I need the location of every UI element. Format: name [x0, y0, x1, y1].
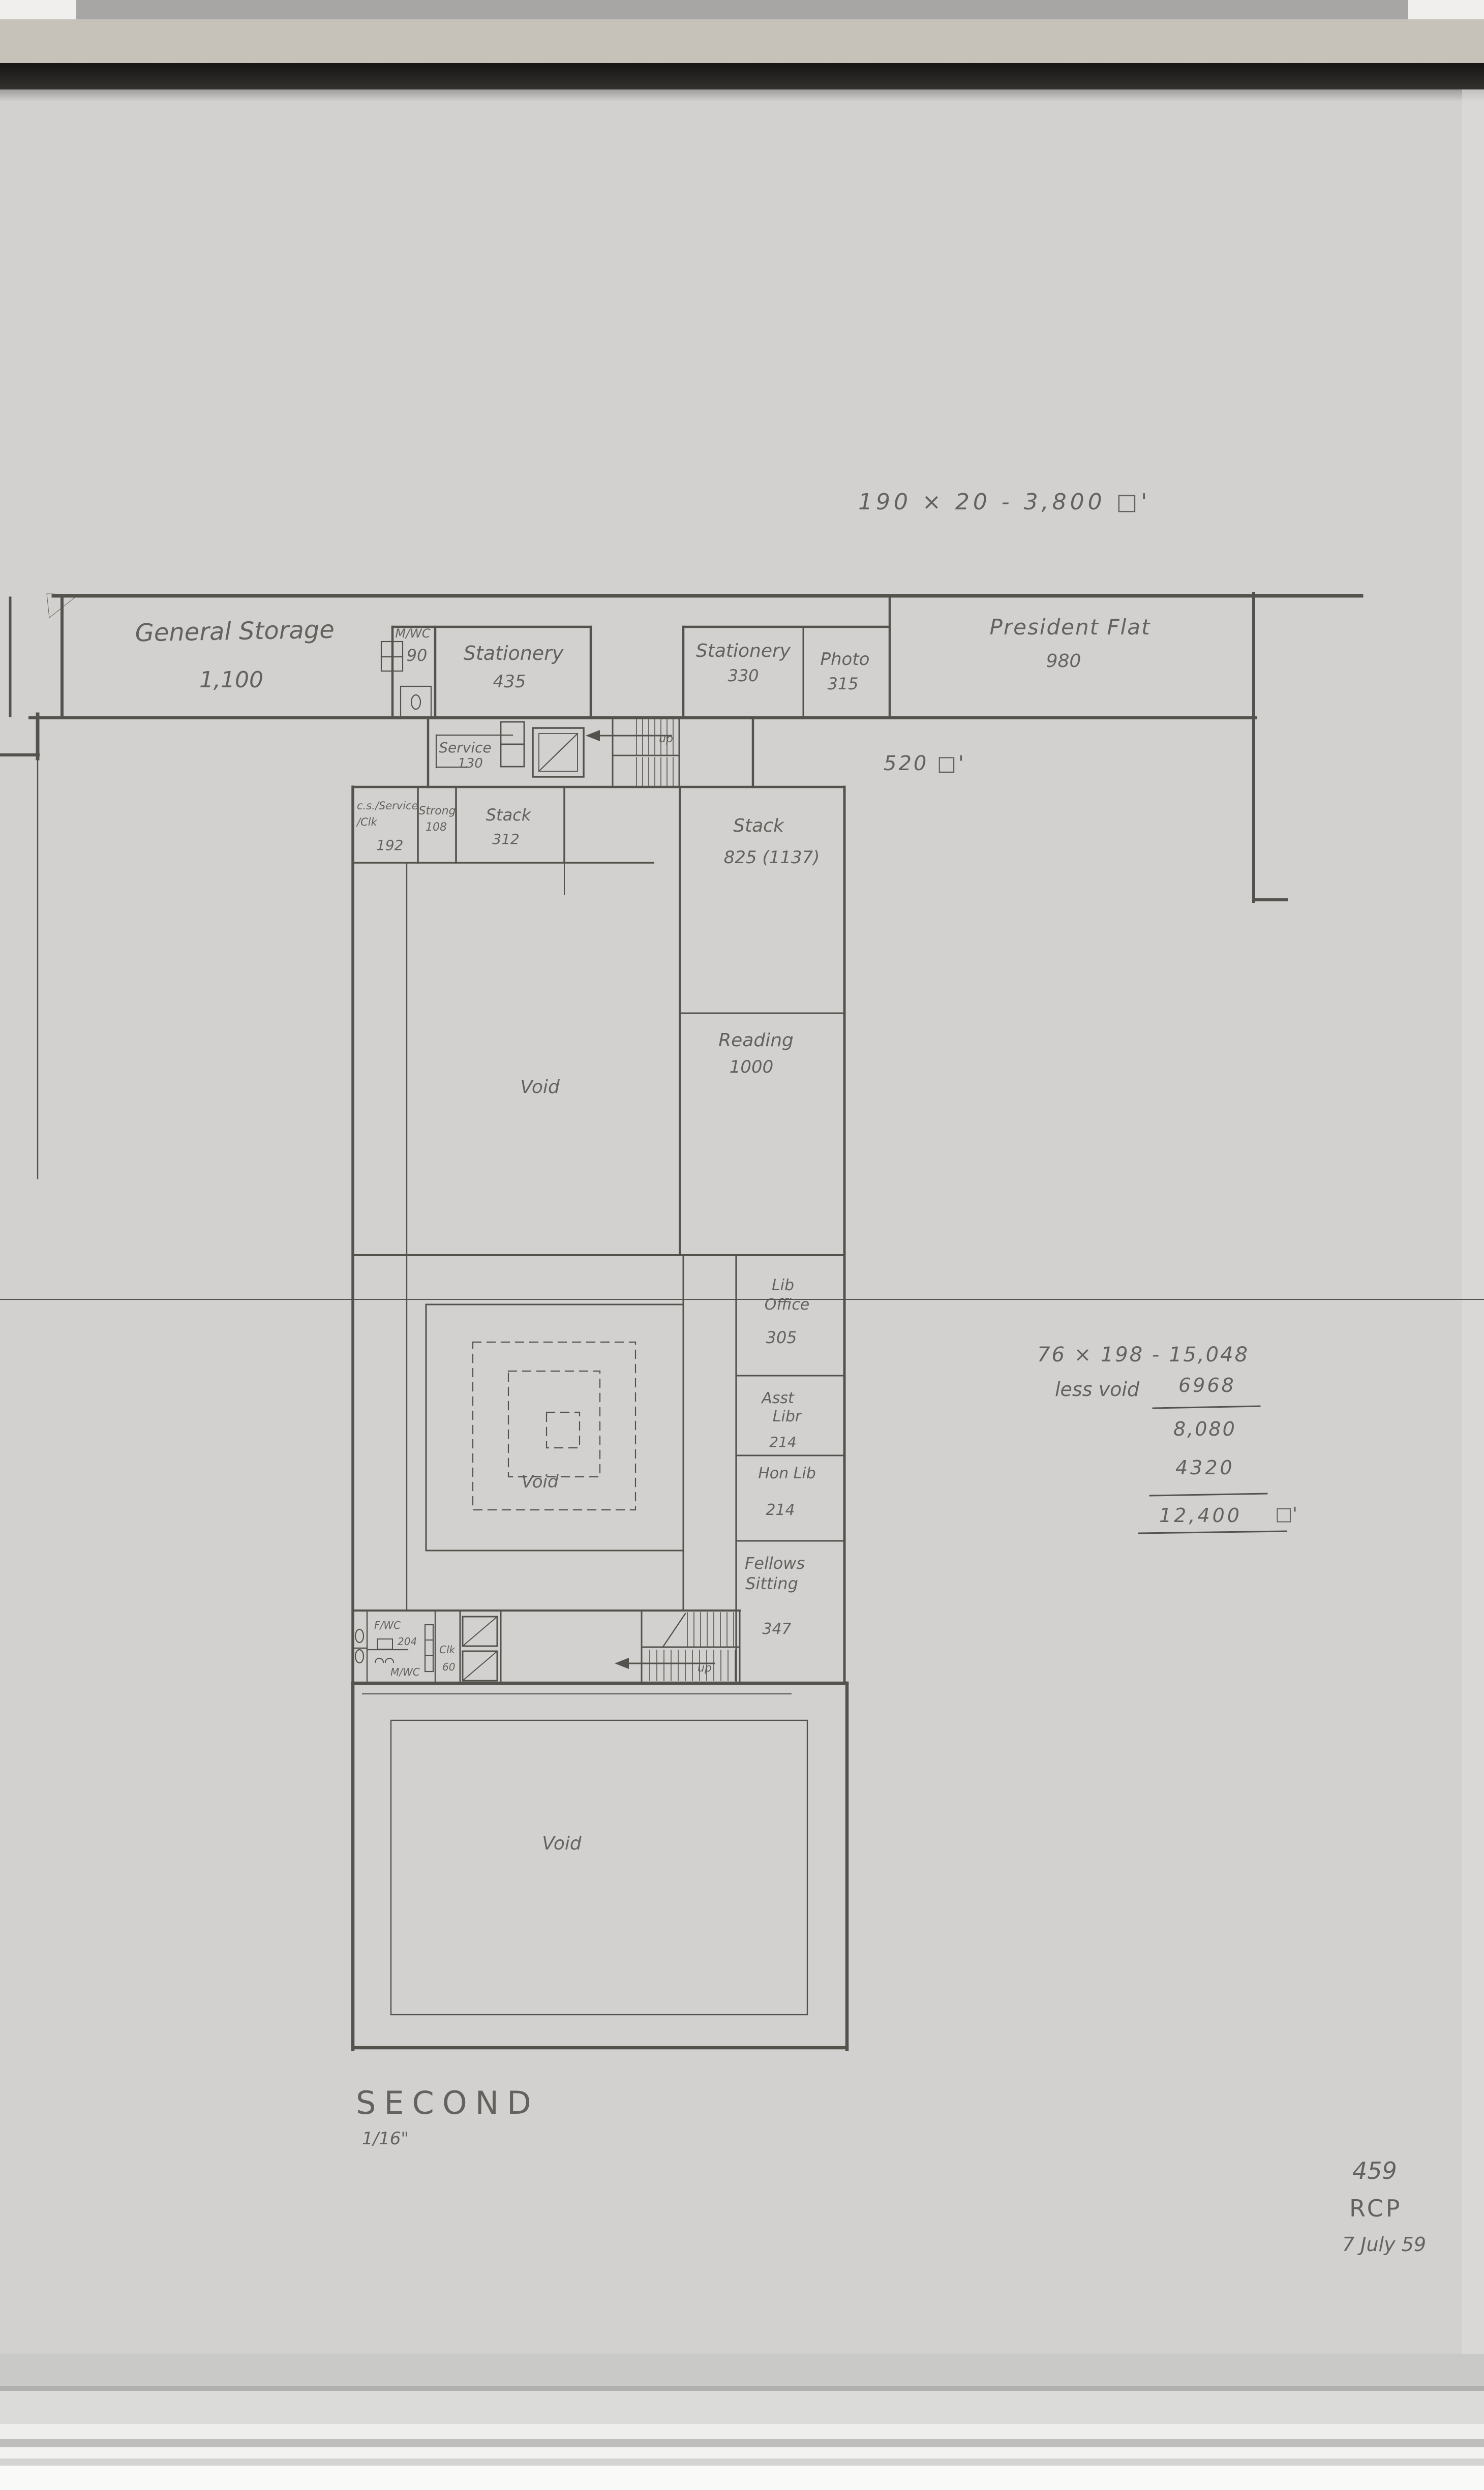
room-label-mwc-upper: M/WC: [395, 626, 431, 641]
calc-less-void-value: 6968: [1178, 1374, 1236, 1396]
calc-subtotal: 8,080: [1173, 1418, 1236, 1440]
room-area-stack-large: 825 (1137): [724, 847, 820, 868]
calc-total-unit: □': [1275, 1504, 1297, 1525]
floor-scale: 1/16": [362, 2129, 409, 2149]
stairs-up-label-south: up: [698, 1662, 712, 1675]
floor-plan-drawing: 190 × 20 - 3,800 □' 520 □' General Stora…: [0, 0, 1484, 2490]
bottom-void-block: [353, 1683, 847, 2049]
room-area-service: 130: [458, 756, 483, 771]
room-area-cs-service-clk: 192: [376, 837, 403, 854]
room-label-photo: Photo: [821, 649, 870, 670]
stamp-number: 459: [1352, 2157, 1397, 2184]
corridor-area-annotation: 520 □': [884, 752, 966, 775]
room-area-lib-office: 305: [766, 1328, 797, 1347]
room-area-stationery-east: 330: [728, 666, 759, 685]
room-area-general-storage: 1,100: [199, 667, 263, 693]
room-label-stationery-east: Stationery: [696, 641, 791, 661]
room-label-lib: Lib: [772, 1277, 794, 1294]
room-label-service: Service: [439, 739, 491, 756]
room-label-clk: Clk: [439, 1644, 456, 1656]
room-area-photo: 315: [827, 674, 858, 693]
room-label-president-flat: President Flat: [990, 615, 1151, 640]
room-labels: General Storage 1,100 M/WC 90 Stationery…: [135, 615, 1150, 1854]
room-label-asst: Asst: [761, 1389, 795, 1407]
calc-line1: 76 × 198 - 15,048: [1037, 1343, 1249, 1367]
calc-deduction: 4320: [1175, 1456, 1235, 1479]
room-label-void-upper: Void: [520, 1077, 560, 1098]
top-calc-annotation: 190 × 20 - 3,800 □': [858, 489, 1150, 515]
up-arrow-icon: [615, 1658, 629, 1669]
floor-title: SECOND: [356, 2084, 539, 2121]
room-label-sitting: Sitting: [745, 1574, 798, 1593]
stamp-date: 7 July 59: [1342, 2233, 1426, 2256]
room-area-fellows-sitting: 347: [762, 1620, 791, 1638]
room-label-stationery-west: Stationery: [464, 642, 564, 664]
room-label-fellows: Fellows: [745, 1554, 805, 1573]
room-area-fwc: 204: [398, 1635, 417, 1648]
room-area-mwc-upper: 90: [407, 646, 428, 665]
title-block: SECOND 1/16": [356, 2084, 539, 2149]
room-area-clk: 60: [442, 1661, 455, 1673]
room-area-president-flat: 980: [1046, 651, 1081, 672]
corridor-block: [353, 718, 844, 787]
stairs-north: [586, 718, 679, 787]
room-label-general-storage: General Storage: [135, 616, 335, 648]
room-area-strong: 108: [426, 821, 447, 834]
room-label-stack-large: Stack: [733, 815, 785, 836]
room-area-reading: 1000: [730, 1057, 774, 1077]
room-label-reading: Reading: [718, 1030, 794, 1051]
side-calculation: 76 × 198 - 15,048 less void 6968 8,080 4…: [1037, 1343, 1297, 1533]
room-label-cs-clk: /Clk: [356, 816, 378, 828]
room-area-stationery-west: 435: [493, 672, 526, 692]
room-label-office: Office: [765, 1296, 810, 1314]
stamp-block: 459 RCP 7 July 59: [1342, 2157, 1426, 2256]
stamp-initials: RCP: [1349, 2195, 1403, 2222]
calc-total: 12,400: [1159, 1504, 1242, 1527]
room-label-libr: Libr: [773, 1408, 802, 1425]
room-label-cs-service: c.s./Service: [357, 800, 418, 812]
scanned-drawing-sheet: 190 × 20 - 3,800 □' 520 □' General Stora…: [0, 0, 1484, 2490]
room-label-void-middle: Void: [521, 1472, 559, 1492]
room-label-strong: Strong: [418, 805, 456, 817]
room-area-hon-lib: 214: [766, 1501, 795, 1519]
calc-less-void-label: less void: [1055, 1378, 1140, 1401]
room-label-mwc-lower: M/WC: [390, 1666, 420, 1678]
stairs-up-label-north: up: [659, 733, 673, 745]
room-label-hon-lib: Hon Lib: [758, 1465, 816, 1482]
room-label-fwc: F/WC: [374, 1619, 401, 1631]
room-area-asst-libr: 214: [769, 1434, 796, 1450]
room-label-stack-small: Stack: [486, 805, 532, 825]
room-area-stack-small: 312: [492, 831, 519, 847]
up-arrow-icon: [586, 730, 600, 741]
stairs-south: [615, 1611, 740, 1683]
room-label-void-lower: Void: [542, 1833, 582, 1854]
